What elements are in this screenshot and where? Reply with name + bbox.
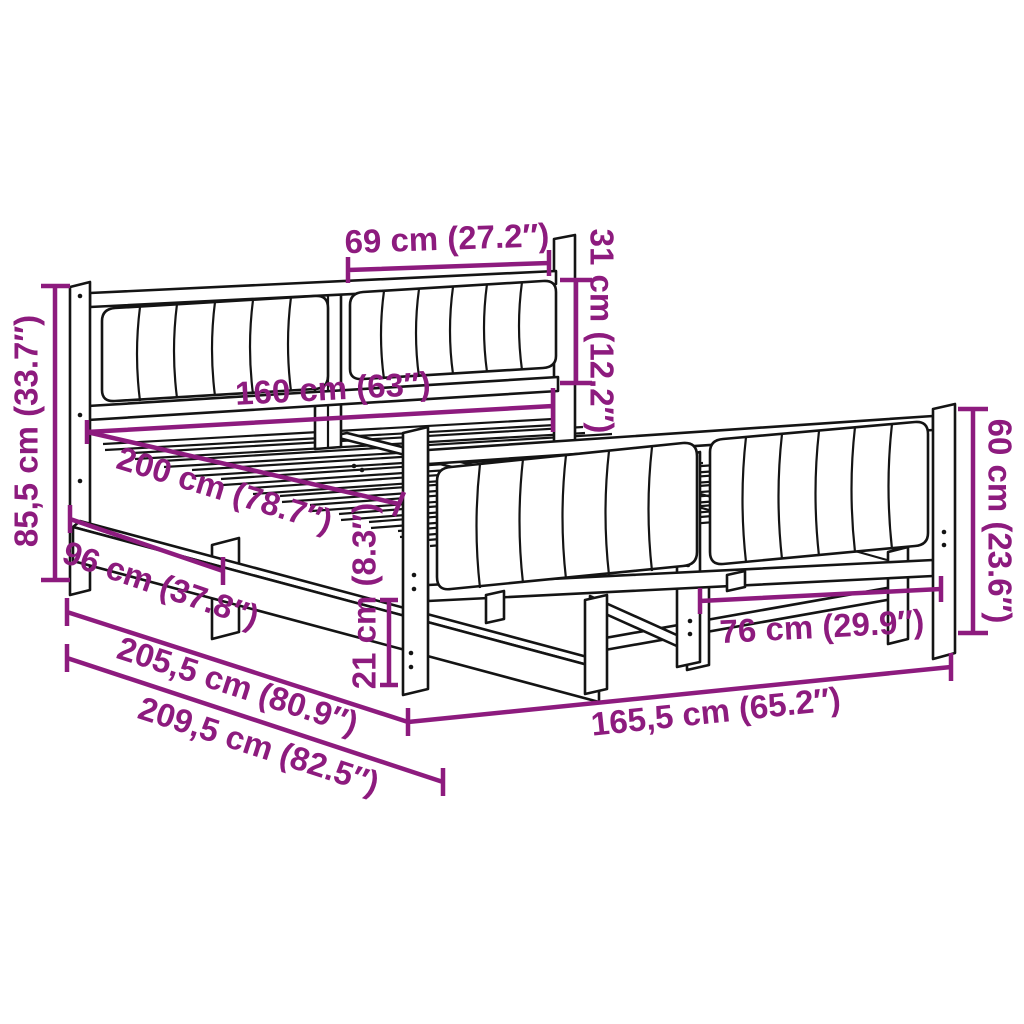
screw-dot [78, 413, 83, 418]
screw-dot [409, 665, 414, 670]
bed-dimensions-figure: 69 cm (27.2″) 31 cm (12.2″) 160 cm (63″)… [0, 0, 1024, 1024]
screw-dot [78, 479, 83, 484]
dim-line [41, 286, 70, 580]
screw-dot [942, 543, 947, 548]
screw-dot [78, 294, 83, 299]
dim-label: 21 cm (8.3″) [346, 503, 383, 689]
screw-dot [688, 619, 693, 624]
screw-dot [352, 464, 357, 469]
screw-dot [942, 530, 947, 535]
footboard-left-post [403, 427, 428, 695]
dim-label: 60 cm (23.6″) [981, 419, 1018, 624]
dim-overall-length: 209,5 cm (82.5″) [67, 644, 443, 802]
dim-footboard-height: 60 cm (23.6″) [958, 409, 1018, 633]
product-dimension-diagram: 69 cm (27.2″) 31 cm (12.2″) 160 cm (63″)… [0, 0, 1024, 1024]
footboard-bracket-right [727, 571, 745, 591]
screw-dot [360, 468, 365, 473]
dim-label: 85,5 cm (33.7″) [8, 315, 45, 547]
screw-dot [412, 587, 417, 592]
footboard-bracket-left [486, 591, 504, 623]
dim-label: 69 cm (27.2″) [344, 216, 550, 260]
screw-dot [412, 573, 417, 578]
screw-dot [409, 651, 414, 656]
dim-under-bed-clearance: 21 cm (8.3″) [346, 503, 398, 689]
screw-dot [688, 632, 693, 637]
foot-leg-left [585, 595, 607, 694]
dim-headboard-height: 85,5 cm (33.7″) [8, 286, 70, 580]
dim-label: 31 cm (12.2″) [583, 229, 620, 434]
